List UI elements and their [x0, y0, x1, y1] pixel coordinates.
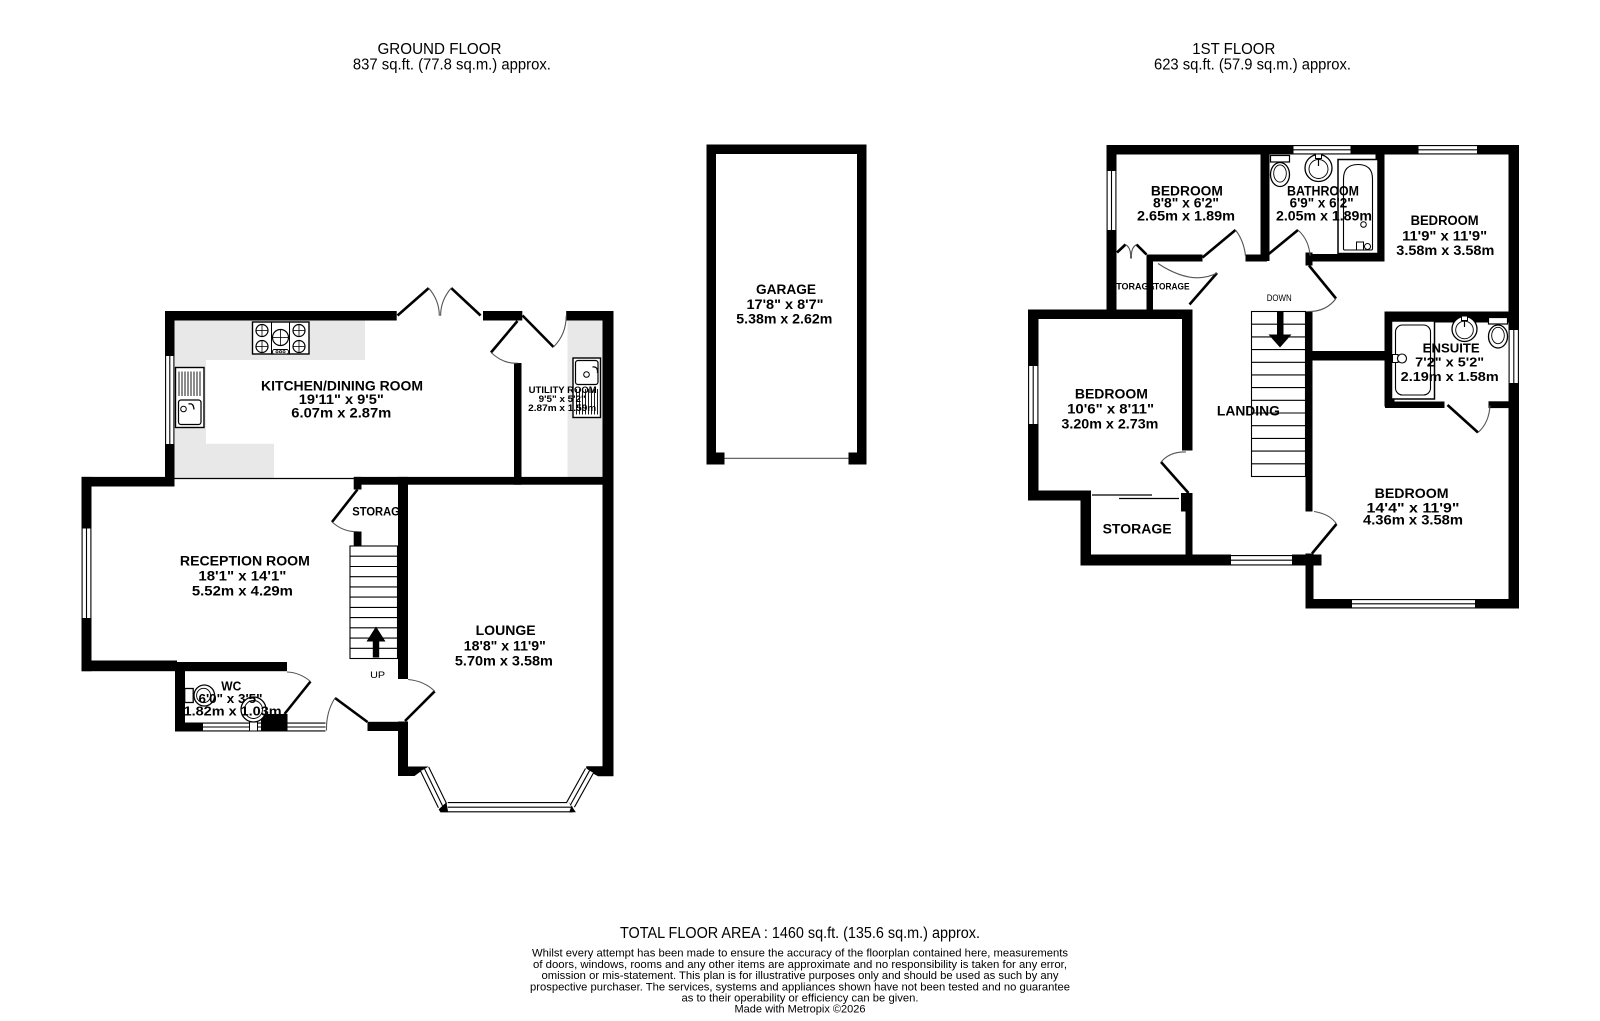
- svg-text:5.70m x 3.58m: 5.70m x 3.58m: [455, 654, 553, 670]
- svg-text:5.52m x 4.29m: 5.52m x 4.29m: [192, 583, 293, 599]
- svg-text:10'6" x 8'11": 10'6" x 8'11": [1067, 402, 1154, 418]
- svg-text:6.07m x 2.87m: 6.07m x 2.87m: [291, 406, 391, 422]
- svg-text:as to their operability or eff: as to their operability or efficiency ca…: [682, 993, 919, 1005]
- svg-text:BEDROOM: BEDROOM: [1411, 213, 1479, 229]
- svg-text:LOUNGE: LOUNGE: [476, 623, 536, 639]
- svg-text:4.36m x 3.58m: 4.36m x 3.58m: [1363, 512, 1463, 528]
- svg-text:RECEPTION ROOM: RECEPTION ROOM: [180, 553, 310, 569]
- svg-text:3.20m x 2.73m: 3.20m x 2.73m: [1061, 416, 1158, 432]
- svg-text:UP: UP: [370, 670, 385, 681]
- svg-text:Whilst every attempt has been: Whilst every attempt has been made to en…: [532, 948, 1069, 960]
- svg-text:prospective purchaser. The ser: prospective purchaser. The services, sys…: [530, 981, 1070, 993]
- svg-text:2.87m x 1.59m: 2.87m x 1.59m: [528, 403, 596, 413]
- svg-text:GARAGE: GARAGE: [756, 282, 816, 298]
- svg-text:1.82m x 1.03m: 1.82m x 1.03m: [184, 703, 282, 718]
- svg-text:7'2" x 5'2": 7'2" x 5'2": [1415, 355, 1484, 370]
- svg-text:3.58m x 3.58m: 3.58m x 3.58m: [1396, 243, 1494, 259]
- svg-text:623 sq.ft. (57.9 sq.m.) approx: 623 sq.ft. (57.9 sq.m.) approx.: [1154, 57, 1351, 74]
- svg-text:BEDROOM: BEDROOM: [1075, 386, 1148, 402]
- svg-text:STORAGE: STORAGE: [1149, 282, 1190, 292]
- svg-text:ENSUITE: ENSUITE: [1423, 341, 1480, 356]
- svg-text:Made with Metropix ©2026: Made with Metropix ©2026: [735, 1004, 866, 1016]
- svg-text:17'8" x 8'7": 17'8" x 8'7": [747, 297, 824, 313]
- svg-text:TOTAL FLOOR AREA : 1460 sq.ft.: TOTAL FLOOR AREA : 1460 sq.ft. (135.6 sq…: [620, 925, 980, 942]
- svg-text:DOWN: DOWN: [1267, 293, 1292, 304]
- svg-text:LANDING: LANDING: [1217, 404, 1280, 420]
- svg-text:2.05m x 1.89m: 2.05m x 1.89m: [1276, 209, 1372, 224]
- svg-text:11'9" x 11'9": 11'9" x 11'9": [1402, 229, 1487, 245]
- svg-text:STORAGE: STORAGE: [1103, 522, 1172, 538]
- svg-text:of doors, windows, rooms and a: of doors, windows, rooms and any other i…: [533, 959, 1067, 971]
- svg-text:18'1" x 14'1": 18'1" x 14'1": [198, 568, 286, 584]
- svg-text:5.38m x 2.62m: 5.38m x 2.62m: [736, 312, 832, 328]
- svg-text:18'8" x 11'9": 18'8" x 11'9": [464, 638, 546, 654]
- svg-text:2.19m x 1.58m: 2.19m x 1.58m: [1401, 369, 1499, 384]
- svg-text:837 sq.ft. (77.8 sq.m.) approx: 837 sq.ft. (77.8 sq.m.) approx.: [353, 57, 551, 74]
- svg-text:2.65m x 1.89m: 2.65m x 1.89m: [1137, 209, 1235, 224]
- svg-text:omission or mis-statement. Thi: omission or mis-statement. This plan is …: [542, 970, 1060, 982]
